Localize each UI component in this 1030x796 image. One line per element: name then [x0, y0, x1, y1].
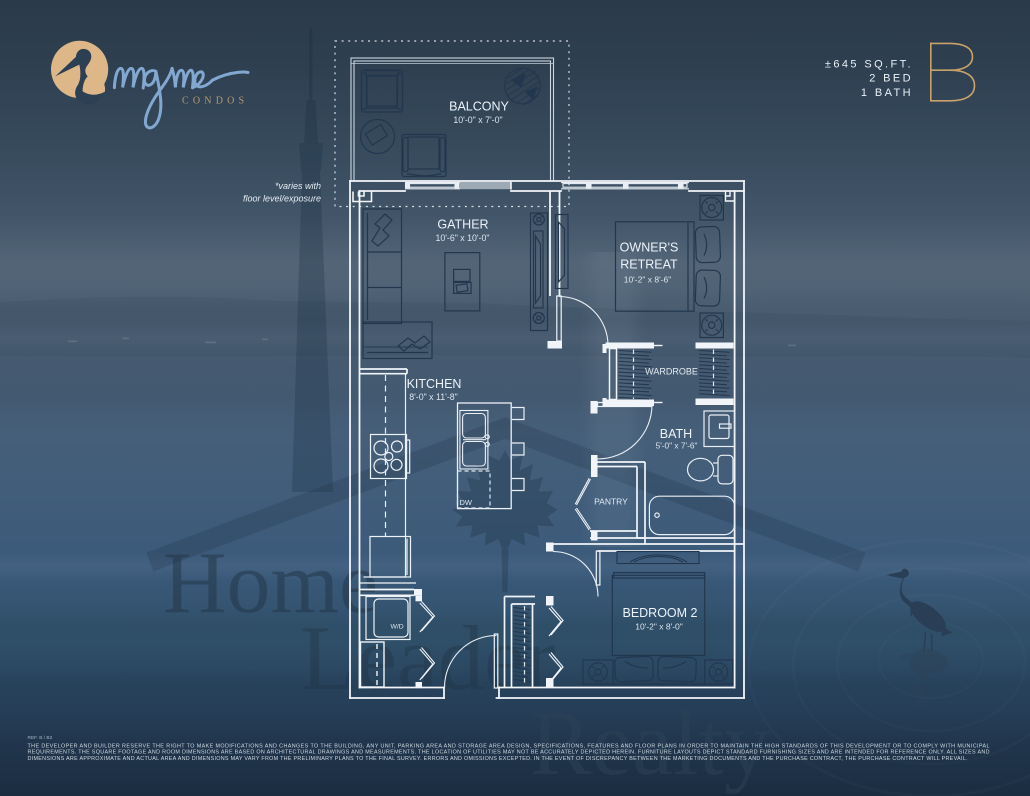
svg-text:5'-0" x 7'-6": 5'-0" x 7'-6" — [656, 441, 698, 451]
svg-text:BALCONY: BALCONY — [449, 100, 509, 114]
svg-text:W/D: W/D — [391, 624, 404, 631]
svg-text:10'-0" x 7'-0": 10'-0" x 7'-0" — [453, 115, 502, 125]
svg-text:10'-2" x 8'-6": 10'-2" x 8'-6" — [624, 275, 672, 285]
svg-text:2 BED: 2 BED — [869, 73, 913, 85]
svg-text:OWNER'S: OWNER'S — [620, 241, 679, 255]
svg-text:BATH: BATH — [660, 427, 692, 441]
svg-text:8'-0" x 11'-8": 8'-0" x 11'-8" — [409, 392, 458, 402]
svg-text:10'-6" x 10'-0": 10'-6" x 10'-0" — [435, 233, 489, 243]
svg-text:WARDROBE: WARDROBE — [645, 367, 698, 377]
svg-text:±645 SQ.FT.: ±645 SQ.FT. — [825, 59, 913, 71]
svg-text:DW: DW — [460, 498, 473, 507]
svg-text:10'-2" x 8'-0": 10'-2" x 8'-0" — [635, 622, 683, 632]
svg-text:BEDROOM 2: BEDROOM 2 — [622, 606, 697, 620]
svg-text:DIMENSIONS ARE APPROXIMATE AND: DIMENSIONS ARE APPROXIMATE AND ACTUAL AR… — [28, 756, 968, 762]
svg-text:CONDOS: CONDOS — [182, 96, 248, 107]
svg-text:KITCHEN: KITCHEN — [407, 377, 462, 391]
svg-text:GATHER: GATHER — [437, 218, 488, 232]
svg-text:THE DEVELOPER AND BUILDER RESE: THE DEVELOPER AND BUILDER RESERVE THE RI… — [28, 744, 990, 750]
svg-text:REF. B / B2: REF. B / B2 — [28, 735, 53, 741]
svg-text:*varies with: *varies with — [275, 181, 321, 191]
svg-text:REQUIREMENTS. THE SQUARE FOOTA: REQUIREMENTS. THE SQUARE FOOTAGE AND ROO… — [28, 750, 990, 756]
svg-text:floor level/exposure: floor level/exposure — [243, 194, 321, 204]
svg-text:RETREAT: RETREAT — [620, 258, 678, 272]
svg-text:1 BATH: 1 BATH — [861, 87, 913, 99]
svg-text:PANTRY: PANTRY — [594, 497, 628, 507]
